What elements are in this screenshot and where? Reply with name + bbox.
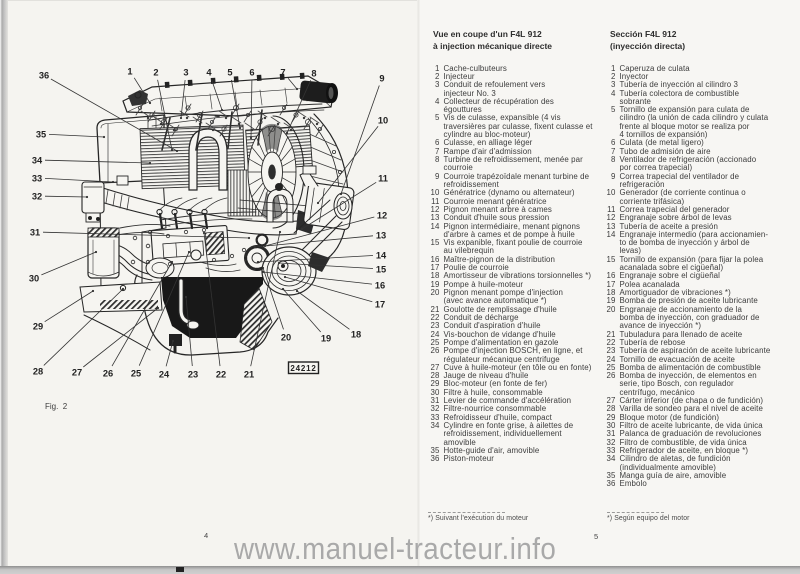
svg-text:14: 14 <box>376 250 387 260</box>
svg-text:6: 6 <box>249 67 254 77</box>
svg-text:34: 34 <box>32 155 43 165</box>
svg-text:33: 33 <box>32 173 42 183</box>
svg-text:17: 17 <box>375 299 385 309</box>
svg-text:2: 2 <box>153 67 158 77</box>
svg-text:4: 4 <box>206 67 212 77</box>
svg-text:9: 9 <box>379 73 384 83</box>
svg-text:24212: 24212 <box>290 364 316 373</box>
svg-text:31: 31 <box>30 227 40 237</box>
svg-text:15: 15 <box>376 264 386 274</box>
svg-text:16: 16 <box>375 280 385 290</box>
svg-text:21: 21 <box>244 369 254 379</box>
svg-text:35: 35 <box>36 129 46 139</box>
svg-text:36: 36 <box>39 70 49 80</box>
svg-text:26: 26 <box>103 368 113 378</box>
svg-text:20: 20 <box>281 332 291 342</box>
svg-text:22: 22 <box>216 369 226 379</box>
svg-text:1: 1 <box>127 66 132 76</box>
svg-text:8: 8 <box>311 68 316 78</box>
svg-text:3: 3 <box>183 67 188 77</box>
svg-text:13: 13 <box>376 230 386 240</box>
svg-text:30: 30 <box>29 273 39 283</box>
svg-text:28: 28 <box>33 366 43 376</box>
svg-text:18: 18 <box>351 329 361 339</box>
svg-text:7: 7 <box>280 67 285 77</box>
svg-text:27: 27 <box>72 367 82 377</box>
svg-text:29: 29 <box>33 321 43 331</box>
svg-text:24: 24 <box>159 369 170 379</box>
svg-text:25: 25 <box>131 368 141 378</box>
svg-text:11: 11 <box>378 173 388 183</box>
svg-text:10: 10 <box>378 115 388 125</box>
svg-text:19: 19 <box>321 333 331 343</box>
svg-text:23: 23 <box>188 369 198 379</box>
svg-text:5: 5 <box>227 67 232 77</box>
svg-text:12: 12 <box>377 210 387 220</box>
svg-text:32: 32 <box>32 191 42 201</box>
